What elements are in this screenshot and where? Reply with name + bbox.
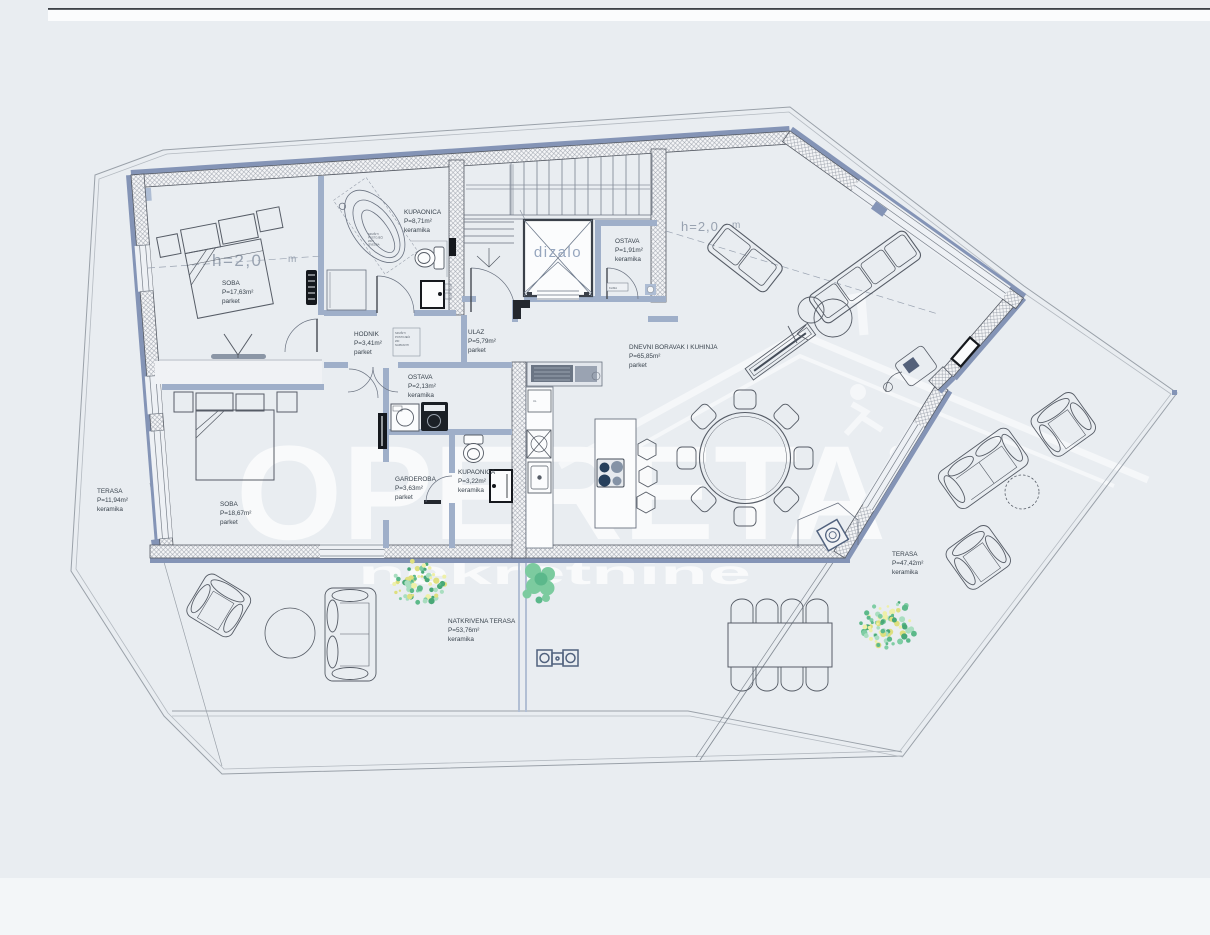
svg-text:P=65,85m²: P=65,85m² bbox=[629, 353, 660, 360]
svg-text:P=53,76m²: P=53,76m² bbox=[448, 627, 479, 634]
svg-text:OSTAVA: OSTAVA bbox=[408, 374, 433, 381]
svg-text:SOBA: SOBA bbox=[222, 280, 240, 287]
svg-text:NATKRIVENA TERASA: NATKRIVENA TERASA bbox=[448, 618, 516, 625]
svg-text:UL: UL bbox=[533, 399, 537, 403]
svg-text:parket: parket bbox=[629, 362, 647, 369]
svg-text:keramika: keramika bbox=[97, 506, 123, 513]
svg-text:P=47,42m²: P=47,42m² bbox=[892, 560, 923, 567]
svg-text:keramika: keramika bbox=[404, 227, 430, 234]
svg-text:KUPAONICA: KUPAONICA bbox=[404, 209, 442, 216]
svg-text:GARDEROBA: GARDEROBA bbox=[395, 476, 437, 483]
svg-text:NAPRAVITI: NAPRAVITI bbox=[395, 343, 409, 347]
svg-text:keramika: keramika bbox=[448, 636, 474, 643]
svg-text:ZID: ZID bbox=[395, 339, 399, 343]
svg-text:OSTAVA: OSTAVA bbox=[615, 238, 640, 245]
svg-text:keramika: keramika bbox=[892, 569, 918, 576]
svg-text:P=1,91m²: P=1,91m² bbox=[615, 247, 643, 254]
svg-text:keramika: keramika bbox=[458, 487, 484, 494]
svg-text:SOBA: SOBA bbox=[220, 501, 238, 508]
svg-text:keramika: keramika bbox=[615, 256, 641, 263]
svg-text:KUPAONICA: KUPAONICA bbox=[458, 469, 496, 476]
svg-text:parket: parket bbox=[220, 519, 238, 526]
svg-text:parket: parket bbox=[468, 347, 486, 354]
svg-text:P=11,94m²: P=11,94m² bbox=[97, 497, 128, 504]
svg-text:P=8,71m²: P=8,71m² bbox=[404, 218, 432, 225]
svg-text:keramika: keramika bbox=[408, 392, 434, 399]
svg-text:P=2,13m²: P=2,13m² bbox=[408, 383, 436, 390]
svg-text:h=2,0: h=2,0 bbox=[212, 251, 263, 270]
svg-text:P=3,63m²: P=3,63m² bbox=[395, 485, 423, 492]
svg-text:ULAZ: ULAZ bbox=[468, 329, 484, 336]
svg-text:P=18,67m²: P=18,67m² bbox=[220, 510, 251, 517]
svg-text:P=3,22m²: P=3,22m² bbox=[458, 478, 486, 485]
svg-text:dizalo: dizalo bbox=[534, 244, 582, 261]
svg-text:P=5,79m²: P=5,79m² bbox=[468, 338, 496, 345]
svg-text:DNEVNI BORAVAK I KUHINJA: DNEVNI BORAVAK I KUHINJA bbox=[629, 344, 718, 351]
svg-text:IZVEDBA: IZVEDBA bbox=[368, 243, 380, 247]
svg-text:P=3,41m²: P=3,41m² bbox=[354, 340, 382, 347]
svg-text:P=17,63m²: P=17,63m² bbox=[222, 289, 253, 296]
svg-text:parket: parket bbox=[354, 349, 372, 356]
svg-text:h=2,0: h=2,0 bbox=[681, 219, 719, 234]
svg-text:HODNIK: HODNIK bbox=[354, 331, 380, 338]
svg-text:TERASA: TERASA bbox=[892, 551, 918, 558]
svg-text:parket: parket bbox=[395, 494, 413, 501]
svg-text:KLIMA: KLIMA bbox=[609, 286, 617, 290]
svg-text:m: m bbox=[288, 254, 296, 265]
svg-text:parket: parket bbox=[222, 298, 240, 305]
svg-text:TERASA: TERASA bbox=[97, 488, 123, 495]
svg-text:ZID I: ZID I bbox=[368, 239, 374, 243]
